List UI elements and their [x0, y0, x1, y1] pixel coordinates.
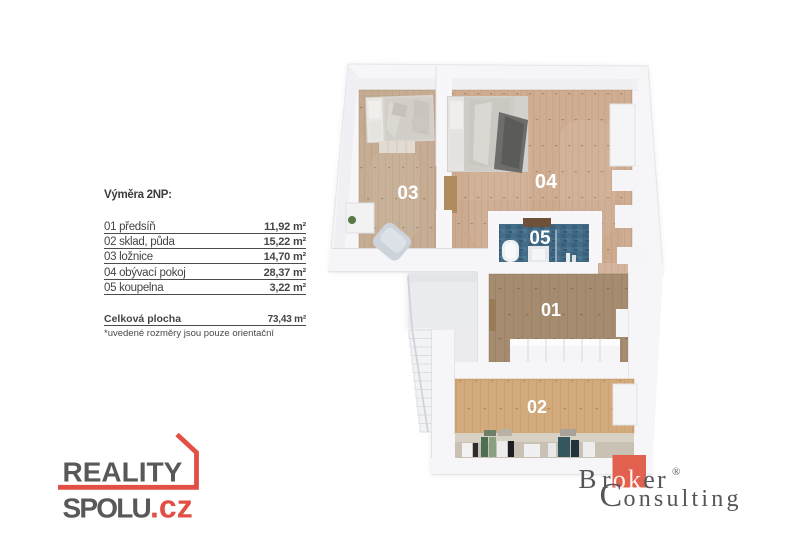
- svg-text:01: 01: [541, 300, 561, 320]
- svg-text:onsulting: onsulting: [624, 486, 742, 512]
- svg-text:03: 03: [397, 183, 418, 204]
- svg-text:04: 04: [535, 171, 558, 193]
- svg-text:REALITY: REALITY: [63, 457, 183, 488]
- svg-text:C: C: [600, 477, 623, 514]
- svg-text:.cz: .cz: [150, 489, 193, 525]
- svg-text:B: B: [579, 464, 597, 494]
- svg-text:02: 02: [527, 397, 547, 417]
- svg-text:®: ®: [672, 466, 680, 478]
- svg-text:SPOLU: SPOLU: [63, 493, 151, 524]
- svg-text:05: 05: [529, 228, 551, 249]
